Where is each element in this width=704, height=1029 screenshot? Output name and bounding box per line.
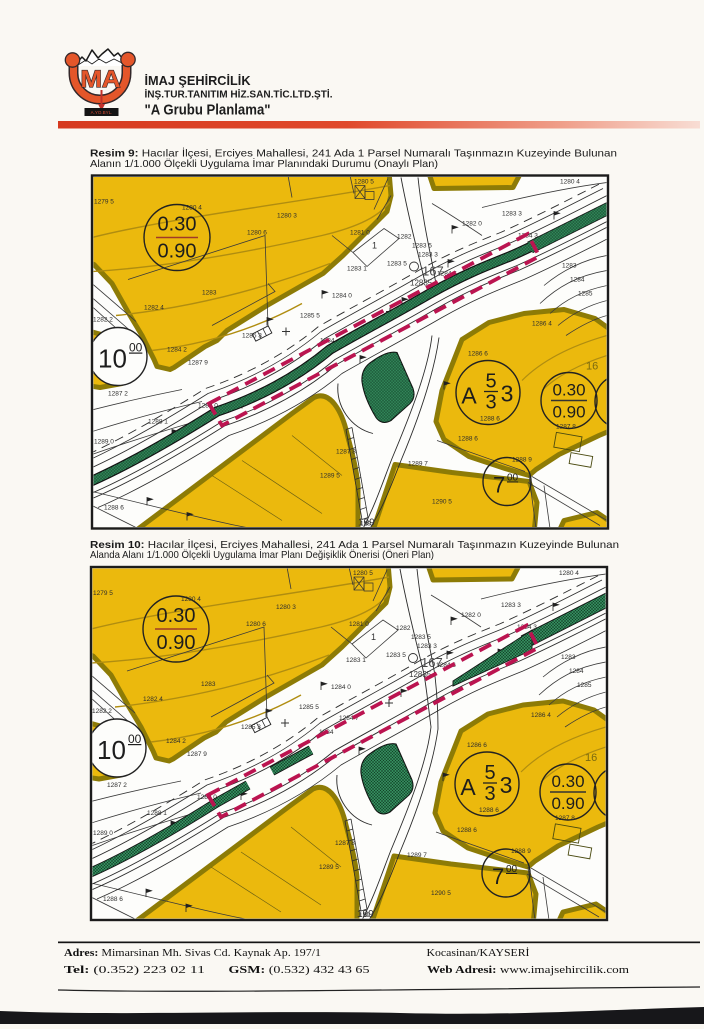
svg-text:A.YO.BYL.: A.YO.BYL. [91,110,113,115]
svg-text:Alanın 1/1.000 Ölçekli Uygulam: Alanın 1/1.000 Ölçekli Uygulama İmar Pla… [90,157,438,170]
svg-text:MA: MA [81,66,121,93]
svg-text:Kocasinan/KAYSERİ: Kocasinan/KAYSERİ [427,947,530,959]
svg-text:Adres: Mimarsinan Mh. Sivas Cd: Adres: Mimarsinan Mh. Sivas Cd. Kaynak A… [64,947,321,959]
svg-text:GSM: (0.532) 432 43 65: GSM: (0.532) 432 43 65 [229,964,371,976]
svg-text:Tel: (0.352) 223 02 11: Tel: (0.352) 223 02 11 [64,964,205,976]
svg-text:"A Grubu Planlama": "A Grubu Planlama" [145,102,271,119]
svg-text:İNŞ.TUR.TANITIM HİZ.SAN.TİC.LT: İNŞ.TUR.TANITIM HİZ.SAN.TİC.LTD.ŞTİ. [145,88,333,101]
svg-text:İMAJ ŞEHİRCİLİK: İMAJ ŞEHİRCİLİK [145,73,252,88]
svg-text:Alanda Alanı 1/1.000 Ölçekli U: Alanda Alanı 1/1.000 Ölçekli Uygulama İm… [90,548,434,561]
svg-text:Web Adresi: www.imajsehircilik: Web Adresi: www.imajsehircilik.com [427,964,630,976]
